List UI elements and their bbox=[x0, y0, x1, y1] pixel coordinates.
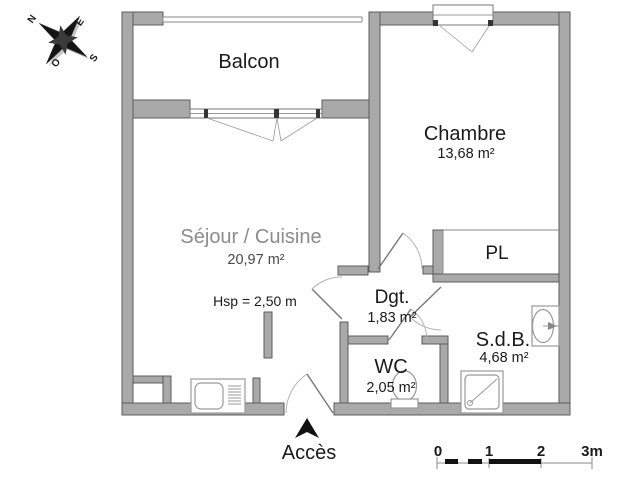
scale-dash-1 bbox=[445, 459, 458, 464]
compass-west-label: O bbox=[50, 57, 64, 70]
wall-bottom-right bbox=[334, 403, 570, 415]
entrance-label: Accès bbox=[282, 442, 336, 464]
wall-dgt-northwest-stub bbox=[338, 266, 368, 275]
compass-rose-icon: N E S O bbox=[23, 0, 106, 83]
sejour-ceiling-height: Hsp = 2,50 m bbox=[213, 293, 297, 309]
bathroom-sink-icon bbox=[532, 306, 559, 346]
wall-chambre-door-jamb bbox=[423, 266, 433, 274]
dgt-label: Dgt. bbox=[375, 287, 410, 308]
chambre-window bbox=[433, 5, 493, 52]
wall-niche-right-stub bbox=[163, 376, 171, 403]
wall-right bbox=[559, 12, 570, 415]
shower-icon bbox=[461, 371, 503, 413]
scale-tick-2: 2 bbox=[537, 443, 545, 460]
entry-door-arc bbox=[286, 374, 307, 413]
sdb-label: S.d.B. bbox=[476, 329, 530, 351]
wall-top-right-of-window bbox=[493, 12, 559, 25]
slider-stop-left bbox=[204, 109, 208, 118]
entry-door bbox=[286, 374, 333, 413]
wall-wc-top-east-stub bbox=[422, 336, 448, 344]
pl-label: PL bbox=[485, 243, 508, 264]
slider-stop-right bbox=[316, 109, 320, 118]
kitchen-sink-drainboard bbox=[228, 386, 241, 404]
floor-plan-drawing: N E S O bbox=[0, 0, 640, 480]
window-jamb-left bbox=[433, 20, 438, 26]
kitchen-sink-icon bbox=[191, 379, 245, 413]
wall-balcony-bottom-left bbox=[133, 100, 190, 118]
scale-dash-2 bbox=[468, 459, 482, 464]
toilet-tank bbox=[391, 399, 418, 408]
wc-area: 2,05 m² bbox=[366, 380, 415, 396]
dgt-area: 1,83 m² bbox=[367, 310, 416, 326]
wall-wc-top bbox=[348, 336, 388, 344]
scale-solid-segment bbox=[489, 459, 541, 464]
wall-left bbox=[122, 12, 133, 415]
balcon-label: Balcon bbox=[218, 51, 279, 73]
compass-north-label: N bbox=[26, 13, 39, 25]
wall-divider-radiator bbox=[264, 312, 272, 358]
scale-tick-1: 1 bbox=[485, 443, 493, 460]
slider-stop-center bbox=[274, 109, 279, 118]
sejour-dgt-door bbox=[312, 277, 342, 319]
chambre-door-leaf bbox=[378, 233, 403, 269]
wall-wc-sdb bbox=[440, 344, 448, 403]
balcony-railing bbox=[163, 17, 362, 22]
window-jamb-right bbox=[488, 20, 493, 26]
sejour-label: Séjour / Cuisine bbox=[180, 226, 321, 248]
sdb-area: 4,68 m² bbox=[479, 350, 528, 366]
sejour-door-arc bbox=[312, 277, 342, 289]
wall-wc-left bbox=[340, 322, 348, 403]
wall-sejour-chambre bbox=[369, 12, 380, 272]
wall-kitchen-stub bbox=[253, 378, 260, 403]
scale-bar: 0 1 2 3m bbox=[434, 443, 603, 469]
wall-balcony-top-stub bbox=[133, 12, 163, 25]
kitchen-sink-basin bbox=[195, 383, 223, 409]
chambre-door bbox=[378, 233, 422, 269]
window-swing bbox=[440, 26, 489, 52]
doors bbox=[286, 233, 441, 413]
scale-tick-3: 3m bbox=[581, 443, 603, 460]
entrance-marker: Accès bbox=[282, 418, 336, 464]
balcony-sliding-door bbox=[190, 109, 322, 141]
entrance-arrow-icon bbox=[295, 418, 319, 438]
sejour-door-leaf bbox=[312, 289, 342, 319]
scale-tick-0: 0 bbox=[434, 443, 442, 460]
wc-label: WC bbox=[374, 356, 407, 378]
floor-plan-page: N E S O bbox=[0, 0, 640, 480]
chambre-door-arc bbox=[403, 233, 422, 269]
wall-balcony-bottom-right bbox=[322, 100, 369, 118]
chambre-area: 13,68 m² bbox=[437, 146, 494, 162]
sejour-area: 20,97 m² bbox=[227, 252, 284, 268]
entry-door-leaf bbox=[307, 374, 333, 413]
chambre-label: Chambre bbox=[424, 123, 506, 145]
compass-south-label: S bbox=[88, 52, 101, 64]
wall-pl-bottom bbox=[433, 274, 559, 282]
slider-swing bbox=[207, 118, 317, 141]
